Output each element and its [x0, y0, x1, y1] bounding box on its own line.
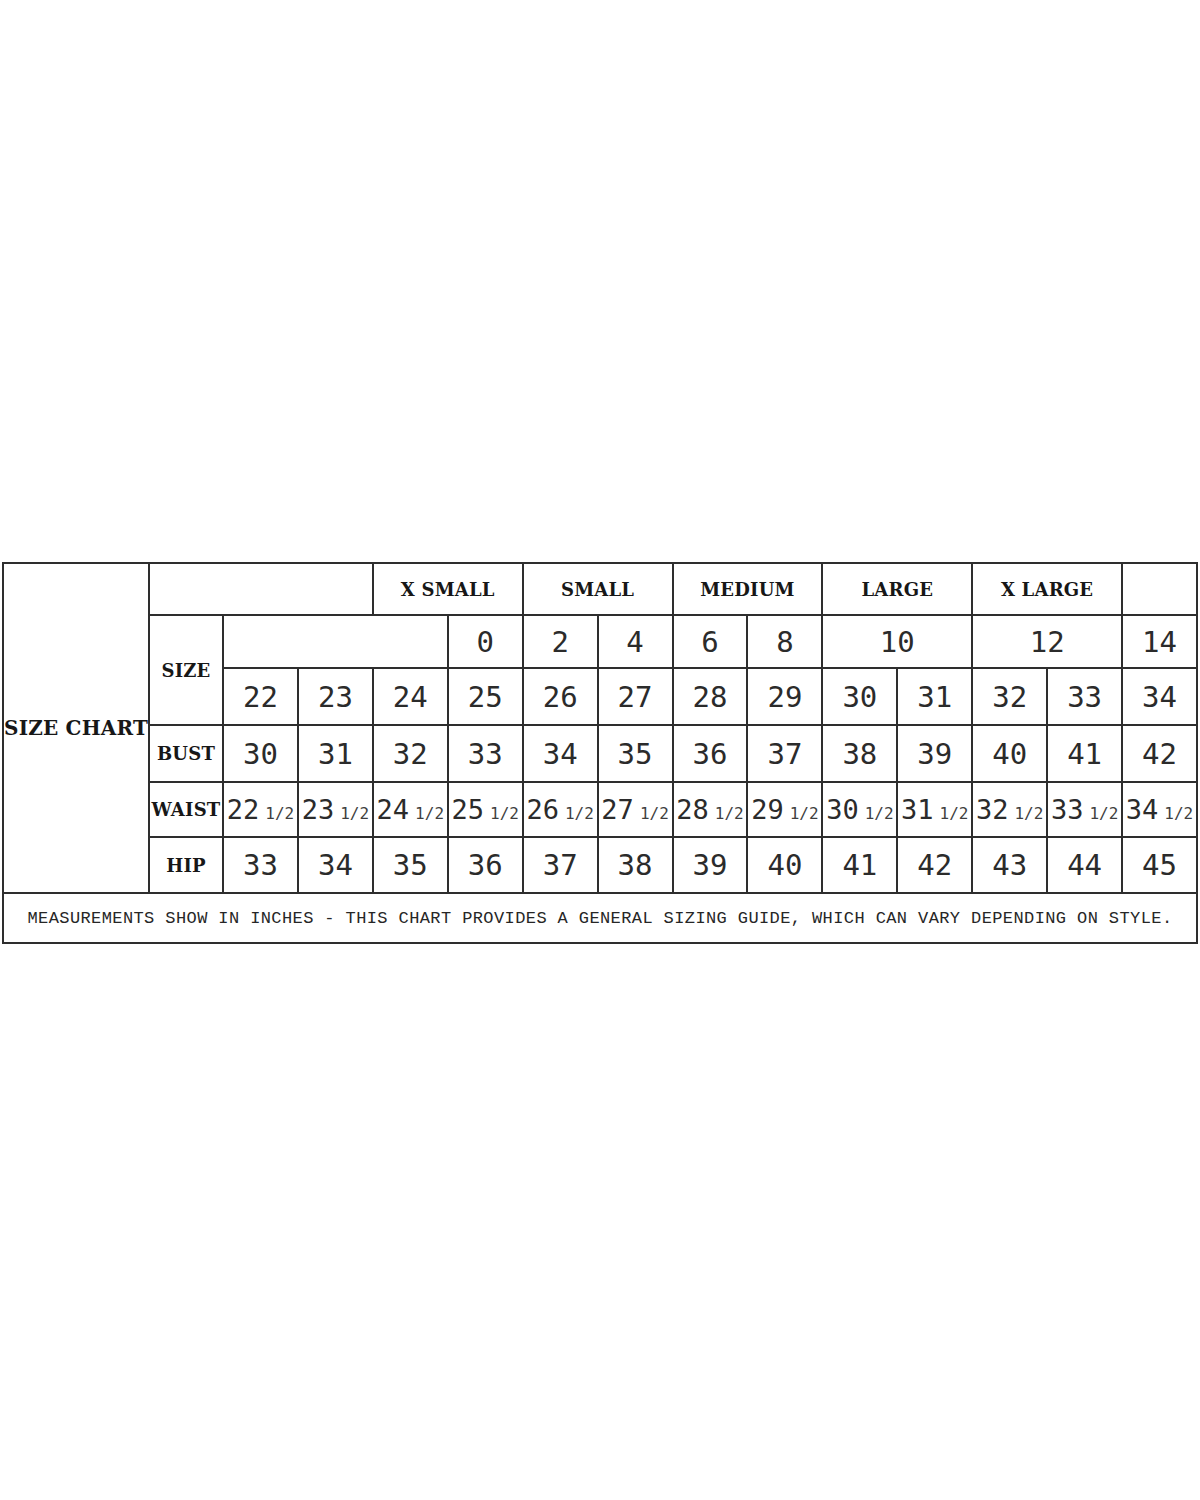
- size-us-value: 14: [1122, 615, 1197, 668]
- waist-whole: 25: [452, 794, 485, 825]
- waist-value: 341/2: [1122, 782, 1197, 837]
- waist-fraction: 1/2: [565, 804, 594, 823]
- waist-fraction: 1/2: [415, 804, 444, 823]
- hip-value: 36: [448, 837, 523, 893]
- waist-fraction: 1/2: [715, 804, 744, 823]
- measurement-note: MEASUREMENTS SHOW IN INCHES - THIS CHART…: [3, 893, 1197, 943]
- row-label-size: SIZE: [149, 615, 223, 725]
- empty-cell: [223, 615, 448, 668]
- size-group-header-large: LARGE: [822, 563, 972, 615]
- waist-whole: 33: [1051, 794, 1084, 825]
- size-group-header-medium: MEDIUM: [673, 563, 823, 615]
- size-secondary-value: 24: [373, 668, 448, 725]
- waist-value: 311/2: [897, 782, 972, 837]
- size-secondary-value: 33: [1047, 668, 1122, 725]
- waist-value: 291/2: [747, 782, 822, 837]
- row-label-hip: HIP: [149, 837, 223, 893]
- waist-fraction: 1/2: [640, 804, 669, 823]
- row-label-waist: WAIST: [149, 782, 223, 837]
- hip-value: 43: [972, 837, 1047, 893]
- waist-whole: 23: [302, 794, 335, 825]
- size-secondary-value: 27: [598, 668, 673, 725]
- size-secondary-value: 26: [523, 668, 598, 725]
- hip-value: 40: [747, 837, 822, 893]
- size-us-value: 12: [972, 615, 1122, 668]
- size-secondary-value: 25: [448, 668, 523, 725]
- waist-value: 251/2: [448, 782, 523, 837]
- waist-fraction: 1/2: [1014, 804, 1043, 823]
- waist-value: 221/2: [223, 782, 298, 837]
- size-chart: SIZE CHART X SMALL SMALL MEDIUM LARGE X …: [2, 562, 1198, 944]
- waist-fraction: 1/2: [1164, 804, 1193, 823]
- footer-row: MEASUREMENTS SHOW IN INCHES - THIS CHART…: [3, 893, 1197, 943]
- size-secondary-value: 30: [822, 668, 897, 725]
- size-secondary-value: 34: [1122, 668, 1197, 725]
- bust-value: 42: [1122, 725, 1197, 782]
- size-us-value: 4: [598, 615, 673, 668]
- size-secondary-value: 22: [223, 668, 298, 725]
- size-chart-title: SIZE CHART: [3, 563, 149, 893]
- waist-fraction: 1/2: [790, 804, 819, 823]
- waist-value: 321/2: [972, 782, 1047, 837]
- waist-whole: 34: [1126, 794, 1159, 825]
- hip-value: 38: [598, 837, 673, 893]
- hip-value: 33: [223, 837, 298, 893]
- bust-value: 38: [822, 725, 897, 782]
- waist-whole: 26: [526, 794, 559, 825]
- bust-value: 32: [373, 725, 448, 782]
- waist-fraction: 1/2: [940, 804, 969, 823]
- waist-value: 301/2: [822, 782, 897, 837]
- bust-value: 41: [1047, 725, 1122, 782]
- size-us-value: 8: [747, 615, 822, 668]
- size-secondary-value: 32: [972, 668, 1047, 725]
- waist-value: 231/2: [298, 782, 373, 837]
- hip-value: 35: [373, 837, 448, 893]
- row-label-bust: BUST: [149, 725, 223, 782]
- waist-whole: 22: [227, 794, 260, 825]
- waist-whole: 30: [826, 794, 859, 825]
- bust-row: BUST 30 31 32 33 34 35 36 37 38 39 40 41…: [3, 725, 1197, 782]
- hip-value: 34: [298, 837, 373, 893]
- waist-fraction: 1/2: [340, 804, 369, 823]
- bust-value: 35: [598, 725, 673, 782]
- size-secondary-value: 29: [747, 668, 822, 725]
- hip-row: HIP 33 34 35 36 37 38 39 40 41 42 43 44 …: [3, 837, 1197, 893]
- waist-whole: 27: [601, 794, 634, 825]
- waist-fraction: 1/2: [490, 804, 519, 823]
- hip-value: 44: [1047, 837, 1122, 893]
- waist-whole: 31: [901, 794, 934, 825]
- waist-whole: 29: [751, 794, 784, 825]
- bust-value: 33: [448, 725, 523, 782]
- bust-value: 36: [673, 725, 748, 782]
- waist-whole: 24: [377, 794, 410, 825]
- bust-value: 40: [972, 725, 1047, 782]
- size-us-value: 2: [523, 615, 598, 668]
- hip-value: 41: [822, 837, 897, 893]
- size-us-value: 6: [673, 615, 748, 668]
- waist-fraction: 1/2: [1089, 804, 1118, 823]
- bust-value: 34: [523, 725, 598, 782]
- size-us-row: SIZE 0 2 4 6 8 10 12 14: [3, 615, 1197, 668]
- bust-value: 39: [897, 725, 972, 782]
- size-group-header-small: SMALL: [523, 563, 673, 615]
- waist-value: 261/2: [523, 782, 598, 837]
- bust-value: 30: [223, 725, 298, 782]
- waist-whole: 28: [676, 794, 709, 825]
- waist-value: 281/2: [673, 782, 748, 837]
- waist-whole: 32: [976, 794, 1009, 825]
- waist-value: 241/2: [373, 782, 448, 837]
- size-secondary-value: 23: [298, 668, 373, 725]
- size-group-header-xsmall: X SMALL: [373, 563, 523, 615]
- size-group-header-row: SIZE CHART X SMALL SMALL MEDIUM LARGE X …: [3, 563, 1197, 615]
- size-us-value: 0: [448, 615, 523, 668]
- size-secondary-value: 28: [673, 668, 748, 725]
- size-secondary-value: 31: [897, 668, 972, 725]
- size-us-value: 10: [822, 615, 972, 668]
- hip-value: 37: [523, 837, 598, 893]
- bust-value: 37: [747, 725, 822, 782]
- waist-row: WAIST 221/2 231/2 241/2 251/2 261/2 271/…: [3, 782, 1197, 837]
- hip-value: 39: [673, 837, 748, 893]
- size-chart-table: SIZE CHART X SMALL SMALL MEDIUM LARGE X …: [2, 562, 1198, 944]
- hip-value: 45: [1122, 837, 1197, 893]
- waist-value: 331/2: [1047, 782, 1122, 837]
- waist-fraction: 1/2: [865, 804, 894, 823]
- waist-fraction: 1/2: [265, 804, 294, 823]
- empty-cell: [149, 563, 373, 615]
- empty-cell: [1122, 563, 1197, 615]
- waist-value: 271/2: [598, 782, 673, 837]
- size-group-header-xlarge: X LARGE: [972, 563, 1122, 615]
- hip-value: 42: [897, 837, 972, 893]
- bust-value: 31: [298, 725, 373, 782]
